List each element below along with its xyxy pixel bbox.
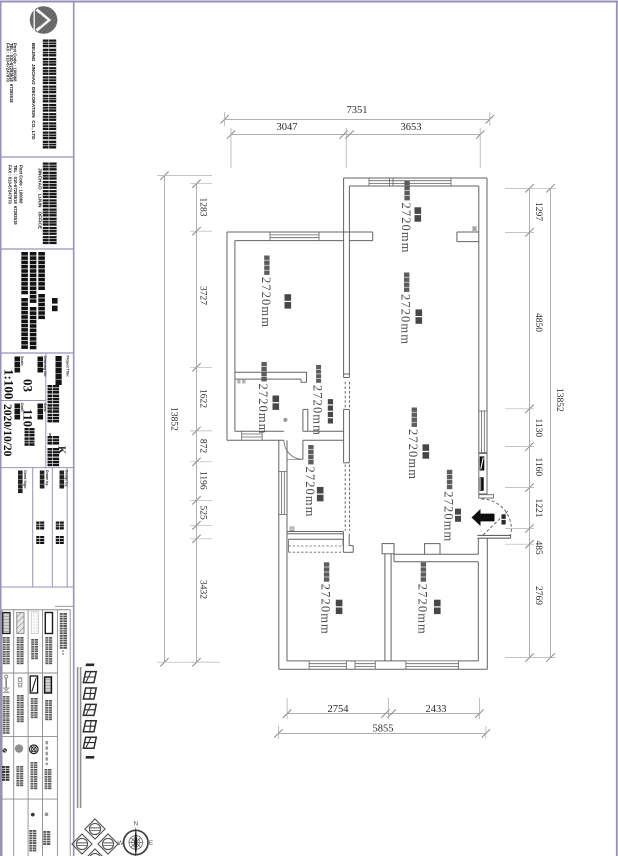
svg-text:13852: 13852: [169, 407, 179, 431]
svg-text:E: E: [149, 840, 154, 847]
svg-text:2720mm: 2720mm: [256, 384, 270, 435]
svg-text:4850: 4850: [533, 313, 543, 332]
svg-text:Design by:: Design by:: [65, 470, 69, 487]
svg-text:1130: 1130: [533, 419, 543, 438]
svg-text:Project Title:: Project Title:: [66, 356, 70, 378]
svg-text:2720mm: 2720mm: [406, 429, 420, 480]
svg-text:Date:: Date:: [20, 403, 24, 412]
svg-text:2720mm: 2720mm: [319, 584, 333, 635]
svg-text:Scale:: Scale:: [20, 356, 24, 367]
svg-text:3047: 3047: [277, 122, 298, 133]
svg-text:BEIJING JINCHAO DECORATION: BEIJING JINCHAO DECORATION CO., LTD: [31, 43, 36, 140]
svg-text:FAX : 010-67247870: FAX : 010-67247870: [6, 43, 11, 83]
svg-text:13852: 13852: [554, 388, 564, 412]
svg-text:2720mm: 2720mm: [399, 203, 413, 254]
svg-text:Post Code : 100068: Post Code : 100068: [19, 165, 24, 204]
svg-text:Drawing No:: Drawing No:: [43, 356, 47, 377]
svg-text:1:100: 1:100: [2, 369, 17, 399]
svg-text:5855: 5855: [373, 724, 394, 735]
svg-text:2720mm: 2720mm: [399, 294, 413, 345]
svg-text:2720mm: 2720mm: [415, 584, 429, 635]
svg-text:2754: 2754: [328, 704, 350, 715]
svg-text:2720mm: 2720mm: [259, 277, 273, 328]
svg-text:JINCHAO LIJUN OFFICE: JINCHAO LIJUN OFFICE: [37, 168, 43, 230]
svg-text:1160: 1160: [533, 458, 543, 477]
svg-text:2720mm: 2720mm: [442, 491, 456, 542]
svg-text:2433: 2433: [426, 704, 447, 715]
svg-text:525: 525: [198, 506, 208, 521]
svg-text:3432: 3432: [198, 580, 208, 599]
svg-text:1221: 1221: [533, 499, 543, 518]
svg-text:2720mm: 2720mm: [303, 467, 317, 518]
svg-text:W: W: [117, 840, 124, 847]
svg-text:N: N: [133, 821, 138, 828]
svg-text:03: 03: [21, 379, 36, 393]
svg-text:Client Sign:: Client Sign:: [23, 470, 27, 489]
svg-text:485: 485: [533, 541, 543, 556]
svg-text:3727: 3727: [198, 286, 208, 305]
svg-text:2720mm: 2720mm: [311, 385, 325, 436]
svg-text:872: 872: [198, 439, 208, 454]
svg-text:2769: 2769: [533, 586, 543, 605]
svg-text:1196: 1196: [198, 471, 208, 490]
svg-text:Drawn by:: Drawn by:: [45, 470, 49, 486]
svg-text:FAX : 010-67247870: FAX : 010-67247870: [8, 165, 13, 205]
svg-text:TEL : 010-67283618 67283519: TEL : 010-67283618 67283519: [13, 165, 18, 225]
svg-text:2020/10/20: 2020/10/20: [1, 404, 13, 457]
svg-text:1622: 1622: [198, 389, 208, 408]
svg-text:Area:: Area:: [43, 403, 47, 412]
svg-text:7351: 7351: [347, 105, 368, 116]
svg-text:1283: 1283: [198, 198, 208, 217]
svg-text:3653: 3653: [401, 122, 422, 133]
svg-text:1297: 1297: [533, 202, 543, 221]
